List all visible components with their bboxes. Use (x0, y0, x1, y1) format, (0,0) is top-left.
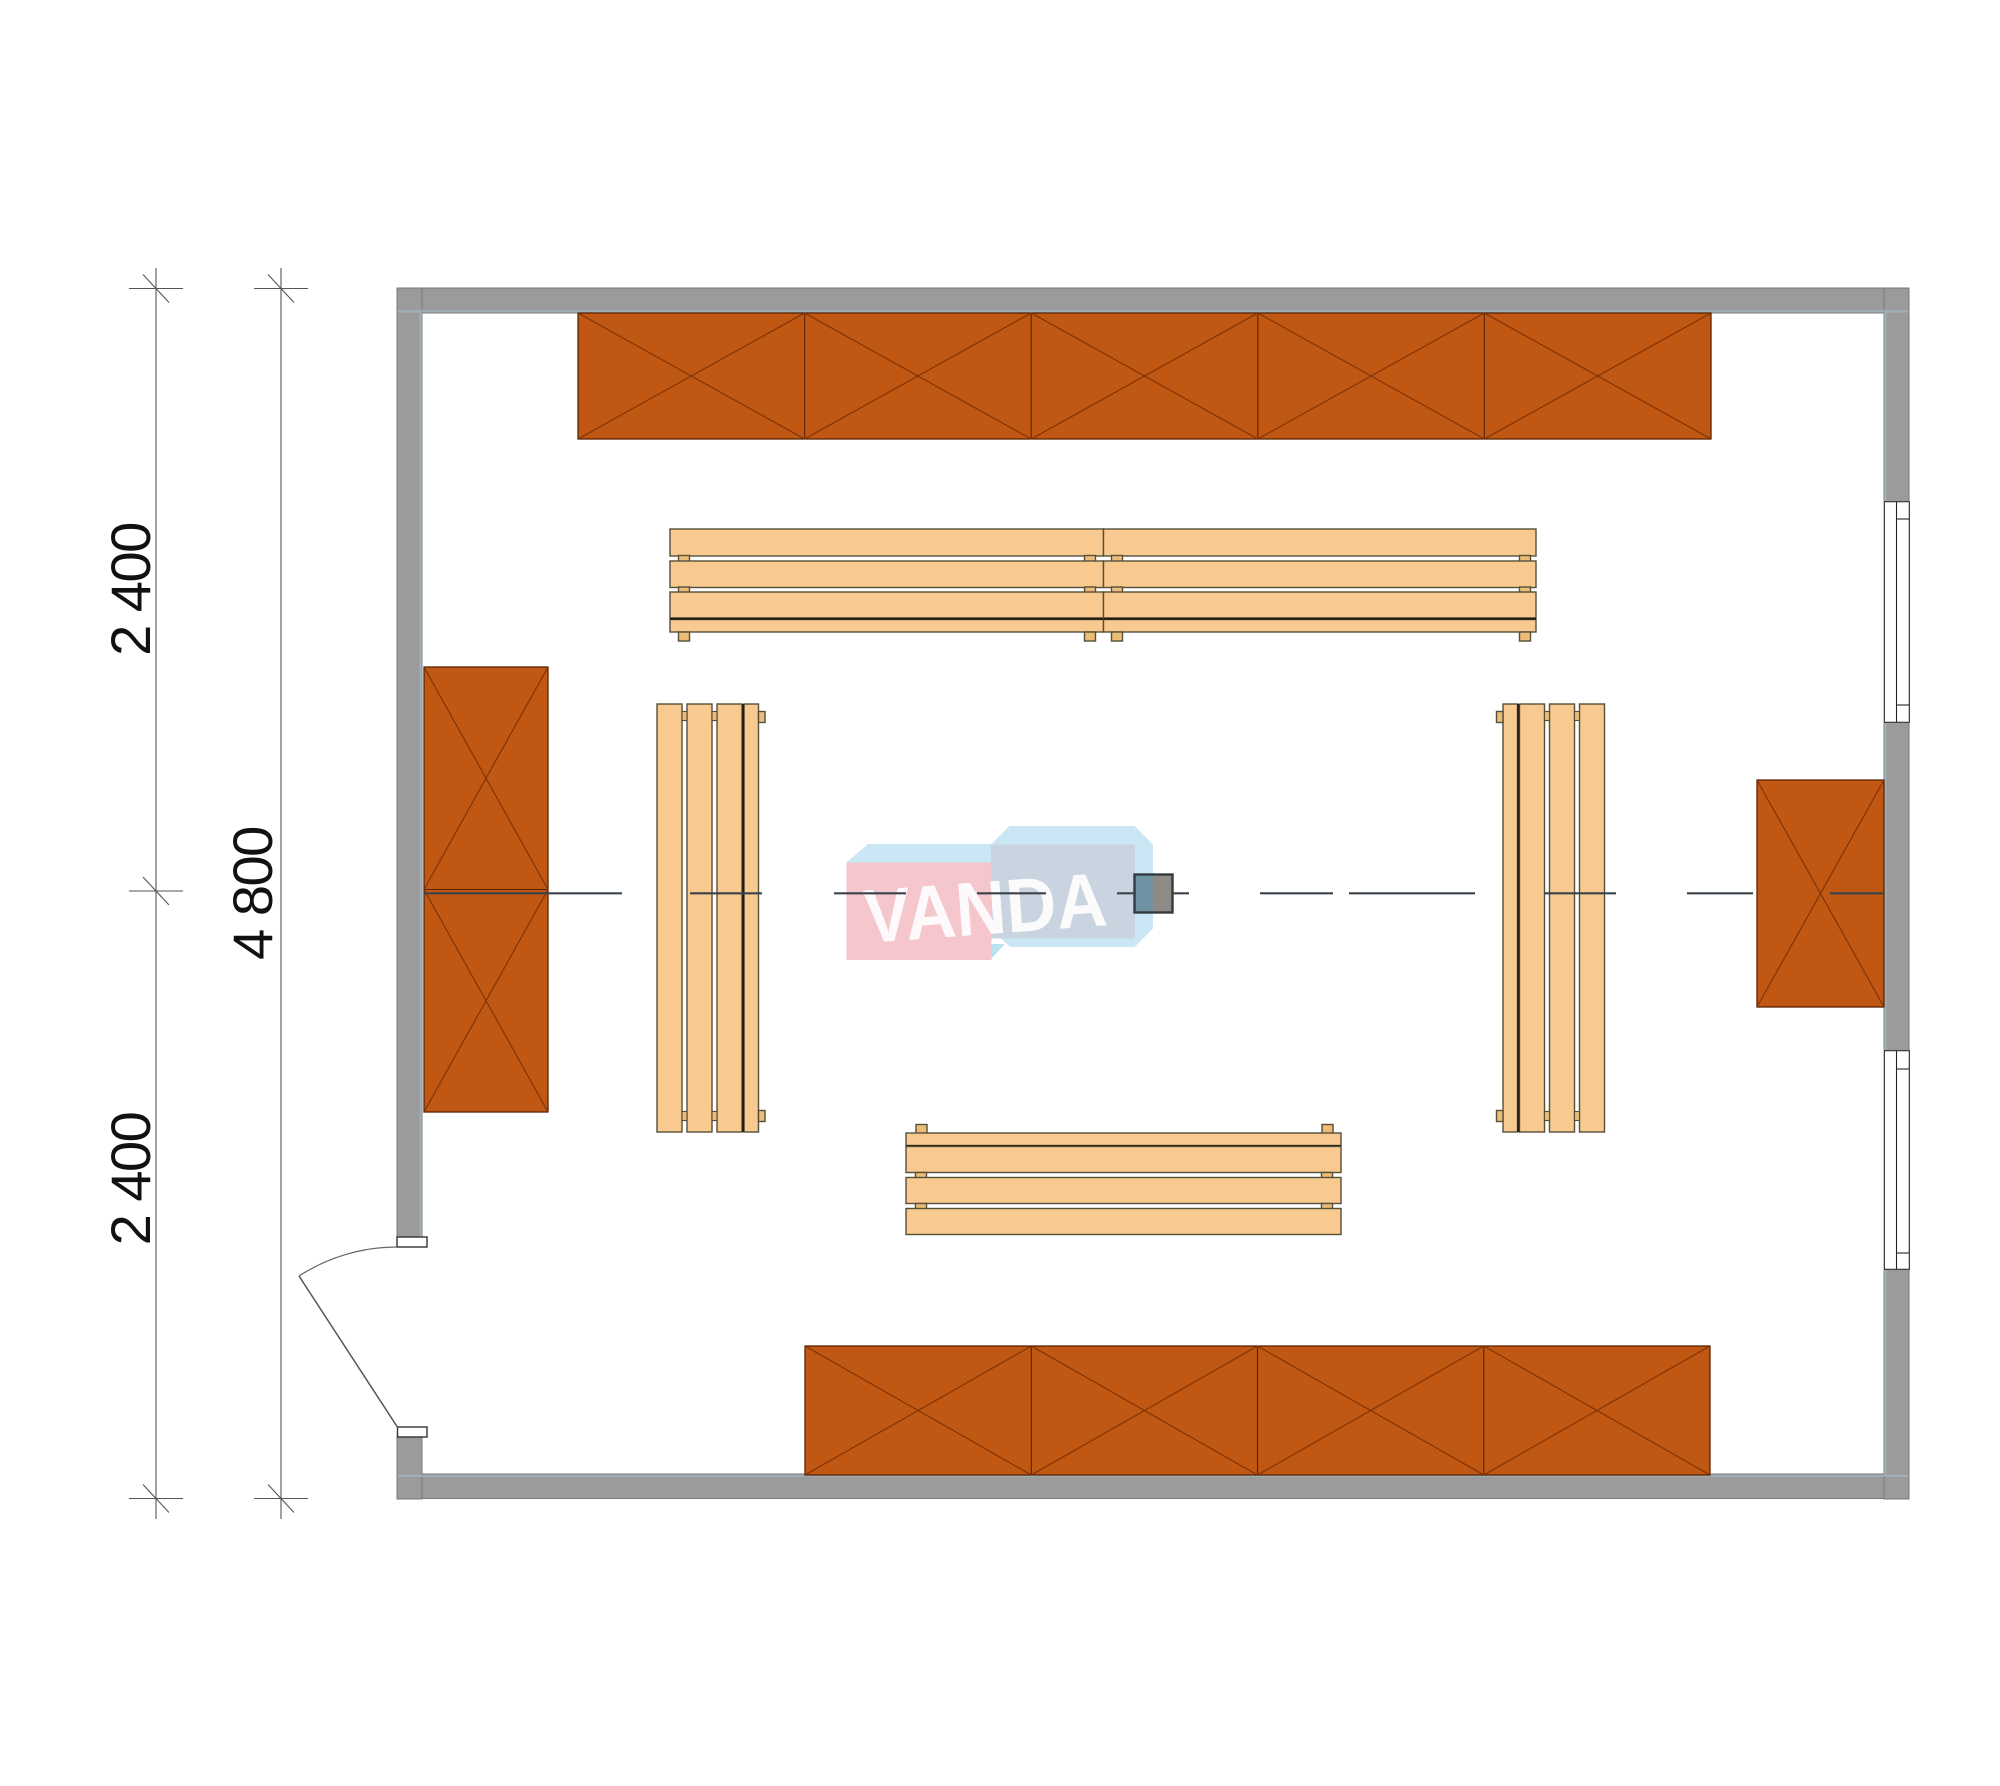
svg-text:4 800: 4 800 (221, 827, 284, 960)
svg-text:VANDA: VANDA (861, 857, 1110, 960)
svg-text:2 400: 2 400 (99, 1113, 162, 1246)
svg-text:2 400: 2 400 (99, 523, 162, 656)
